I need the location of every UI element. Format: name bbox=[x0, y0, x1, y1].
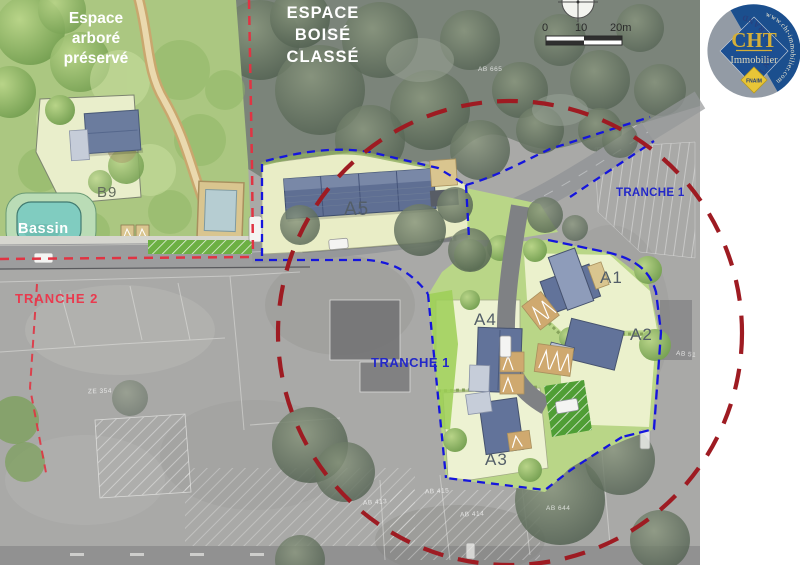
logo-org: FNAIM bbox=[746, 79, 762, 85]
cht-immobilier-logo: PLELAN LE GRAND www.cht-immobilier.com C… bbox=[707, 4, 800, 97]
car bbox=[329, 238, 349, 250]
zone-label-tranche2: TRANCHE 2 bbox=[15, 291, 98, 306]
van bbox=[249, 216, 262, 242]
scale-tick-0: 0 bbox=[542, 22, 548, 34]
site-plan: PLELAN LE GRAND www.cht-immobilier.com C… bbox=[0, 0, 800, 565]
map-canvas: PLELAN LE GRAND www.cht-immobilier.com C… bbox=[0, 0, 800, 565]
logo-brand-sub: Immobilier bbox=[730, 55, 778, 66]
logo-brand: CHT bbox=[731, 28, 777, 52]
label-line: CLASSÉ bbox=[256, 46, 390, 68]
parcel-label: AB 414 bbox=[460, 510, 485, 518]
zone-label-tranche1-right: TRANCHE 1 bbox=[616, 187, 685, 199]
green-parking bbox=[544, 380, 592, 437]
label-line: ESPACE bbox=[256, 2, 390, 24]
parcel-label: AB 415 bbox=[425, 487, 450, 495]
lot-label-b9: B9 bbox=[97, 184, 117, 201]
driveway-a2 bbox=[534, 344, 574, 377]
car bbox=[466, 543, 475, 559]
zone-label-tranche1-center: TRANCHE 1 bbox=[371, 355, 450, 370]
lot-label-a3: A3 bbox=[485, 450, 508, 470]
parcel-label: AB 665 bbox=[478, 66, 502, 73]
scale-bar bbox=[546, 36, 622, 45]
lot-label-a5: A5 bbox=[344, 199, 369, 221]
lot-label-a1: A1 bbox=[600, 268, 623, 288]
scale-tick-20m: 20m bbox=[610, 22, 631, 34]
label-line: arboré bbox=[33, 29, 159, 49]
scale-tick-10: 10 bbox=[575, 22, 587, 34]
parcel-label: ZE 354 bbox=[88, 388, 112, 396]
pool bbox=[197, 181, 244, 240]
label-line: BOISÉ bbox=[256, 24, 390, 46]
lot-label-a4: A4 bbox=[474, 310, 497, 330]
car bbox=[500, 336, 511, 357]
zone-label-espace-arbore: Espace arboré préservé bbox=[33, 9, 159, 69]
label-bassin: Bassin bbox=[18, 221, 69, 237]
label-line: Espace bbox=[33, 9, 159, 29]
label-line: préservé bbox=[33, 49, 159, 69]
lot-label-a2: A2 bbox=[630, 325, 653, 345]
parcel-label: AB 644 bbox=[546, 505, 570, 512]
zone-label-espace-boise: ESPACE BOISÉ CLASSÉ bbox=[256, 2, 390, 68]
